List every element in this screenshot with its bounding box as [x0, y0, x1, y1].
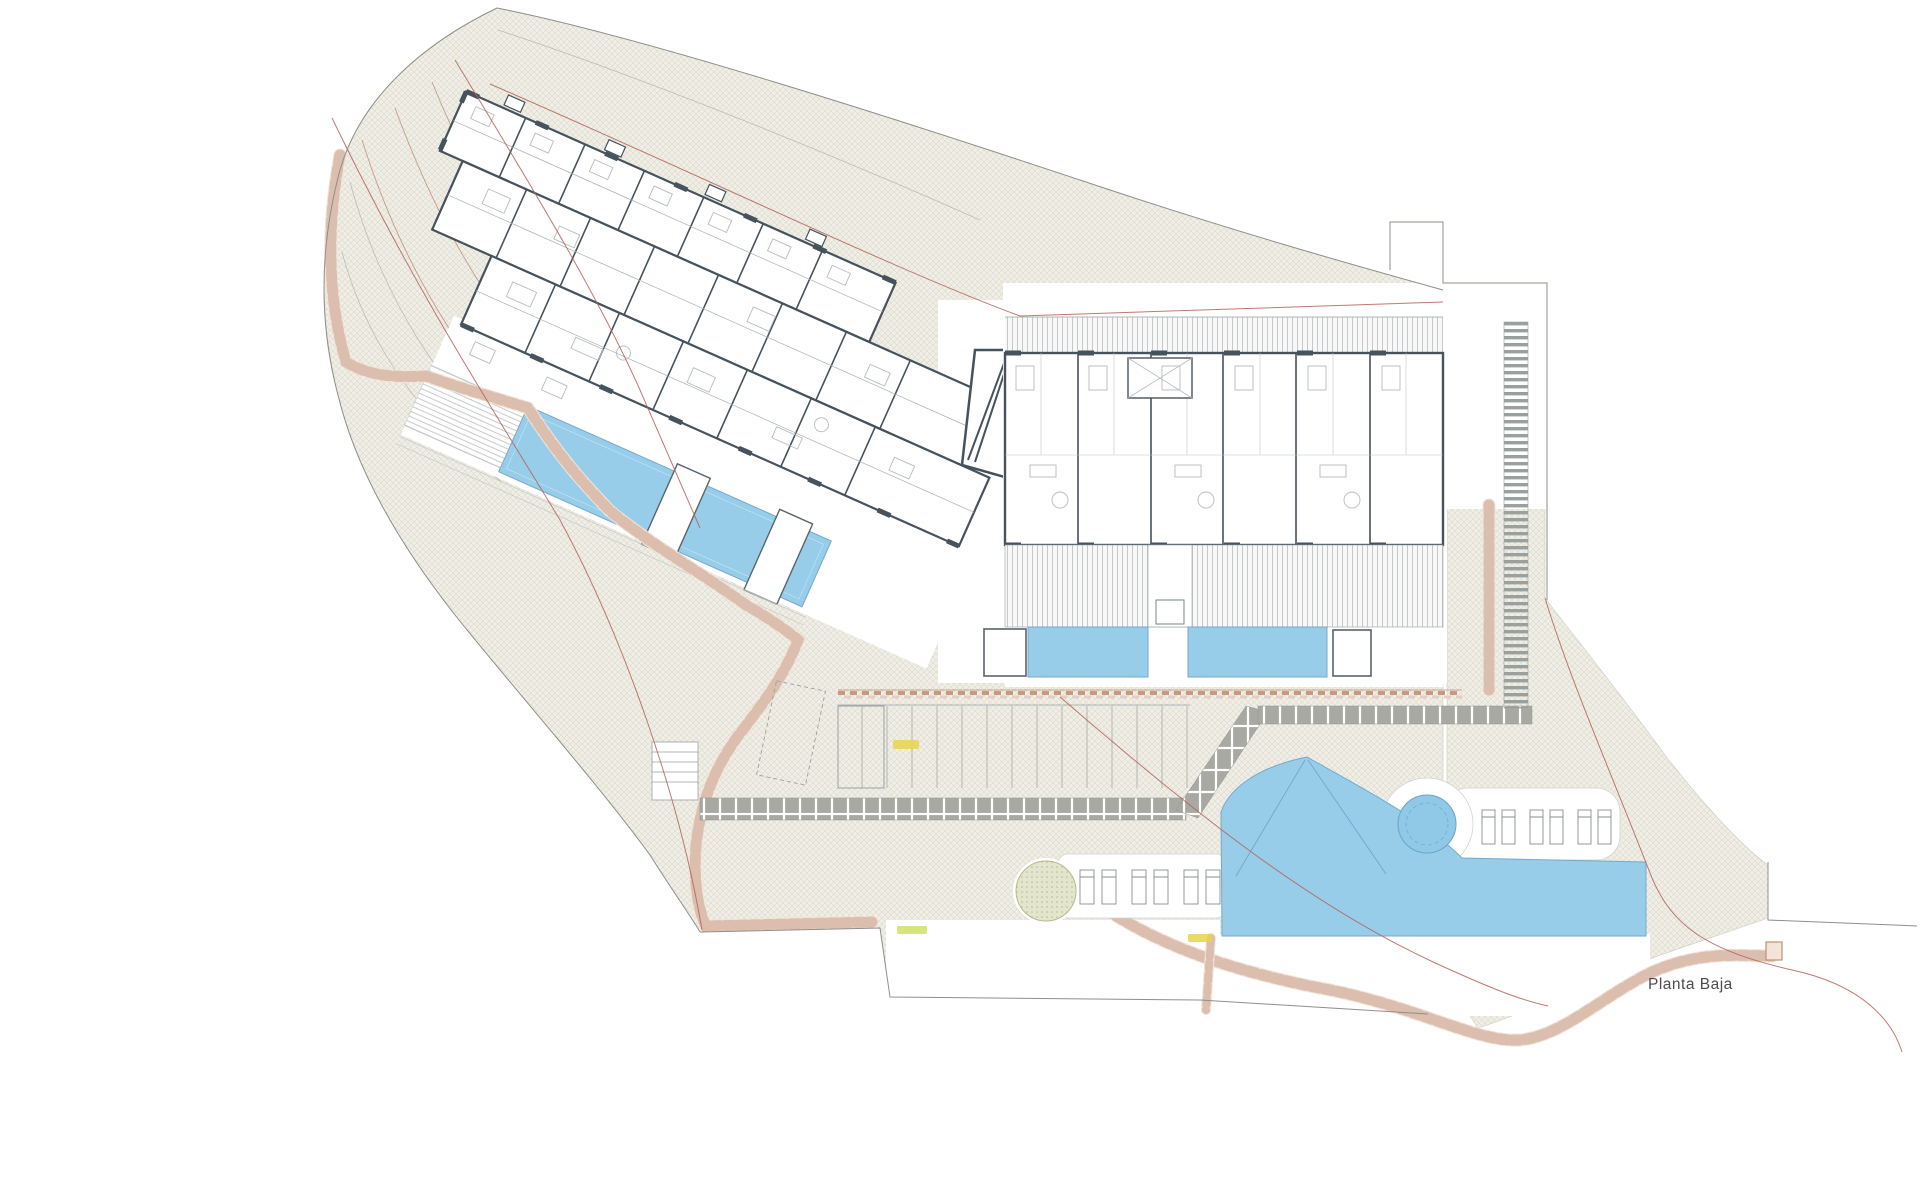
spa-pool [1398, 795, 1456, 853]
stairs-east [1504, 322, 1528, 708]
right-building-north-terrace [1005, 317, 1443, 353]
level-marker-south-west [897, 926, 927, 934]
tree [1013, 858, 1079, 924]
private-pool-east [1188, 627, 1327, 677]
paver-path-south [700, 798, 1186, 820]
right-building-south-terrace [1005, 545, 1443, 627]
level-marker-south-east [1188, 934, 1212, 942]
right-building-walls [1005, 353, 1443, 545]
paver-path-east [1258, 706, 1532, 724]
walkway-planter [1156, 600, 1184, 624]
pool-planter-east [1333, 630, 1371, 676]
east-walkway [1447, 283, 1547, 509]
steps-west [652, 742, 698, 800]
level-marker-parking [893, 740, 919, 749]
private-pool-west [1028, 627, 1148, 677]
site-plan-canvas: Planta Baja [0, 0, 1920, 1200]
site-plan-drawing [0, 0, 1920, 1200]
stone-wall-end-post [1766, 942, 1782, 960]
right-building-stairwell [1128, 358, 1192, 398]
pool-planter-west [984, 629, 1026, 676]
plan-title-label: Planta Baja [1648, 976, 1733, 994]
right-building [984, 283, 1447, 687]
